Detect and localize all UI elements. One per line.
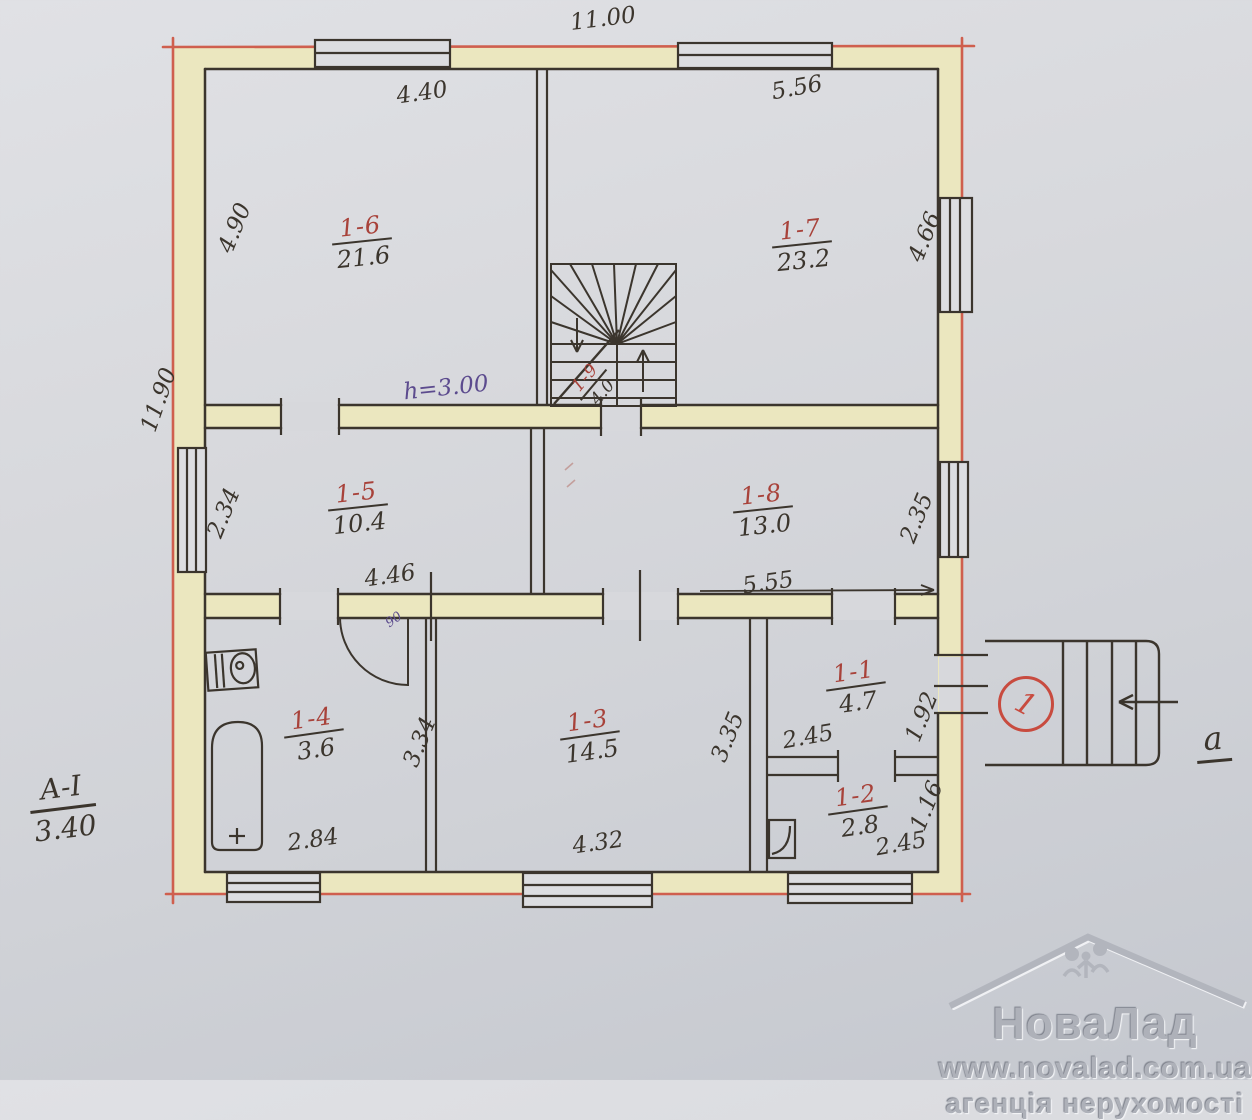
window-top-room7 (678, 43, 832, 68)
window-left-room5 (178, 448, 206, 572)
watermark-brand: НоваЛад (938, 998, 1252, 1050)
room-label-1-3: 1-3 14.5 (556, 705, 623, 770)
watermark-tagline: агенція нерухомості (938, 1088, 1252, 1120)
stair-arrow-up (637, 350, 649, 392)
window-right-room8 (940, 462, 968, 557)
entry-direction-arrow (1119, 695, 1178, 709)
window-bottom-room3 (523, 873, 652, 907)
watermark-figures (1064, 942, 1108, 978)
window-top-room6 (315, 40, 450, 67)
section-mark-label: А-І (26, 767, 96, 814)
stair-arrow-down (571, 318, 583, 352)
interior-partitions (426, 69, 938, 872)
room-label-1-5: 1-5 10.4 (325, 477, 390, 540)
room-label-1-4: 1-4 3.6 (280, 703, 347, 768)
window-bottom-room2 (788, 873, 912, 903)
watermark: НоваЛад www.novalad.com.ua агенція нерух… (938, 928, 1252, 1120)
bathtub (212, 722, 262, 850)
section-mark: А-І 3.40 (26, 767, 100, 848)
entrance-number: 1 (1009, 684, 1042, 724)
entrance-number-circle: 1 (998, 676, 1054, 732)
watermark-url: www.novalad.com.ua (938, 1052, 1252, 1086)
window-bottom-room4 (227, 873, 320, 902)
door-swing (340, 617, 408, 686)
pencil-marks (565, 463, 575, 487)
floor-plan-photo: 11.00 11.90 1-6 21.6 4.40 4.90 1-7 23.2 … (0, 0, 1252, 1080)
room-label-1-1: 1-1 4.7 (822, 656, 889, 721)
entrance-axis-letter: а (1194, 718, 1233, 764)
toilet-fixture (769, 820, 795, 858)
bathroom-fixtures (206, 649, 262, 850)
red-outer-contour (163, 38, 974, 903)
windows (178, 40, 972, 907)
room-label-1-7: 1-7 23.2 (769, 214, 834, 277)
plan-linework (0, 0, 1252, 1080)
washbasin (206, 649, 259, 690)
window-right-room7 (940, 198, 972, 312)
room-label-1-8: 1-8 13.0 (730, 479, 795, 542)
room-label-1-6: 1-6 21.6 (329, 211, 394, 274)
